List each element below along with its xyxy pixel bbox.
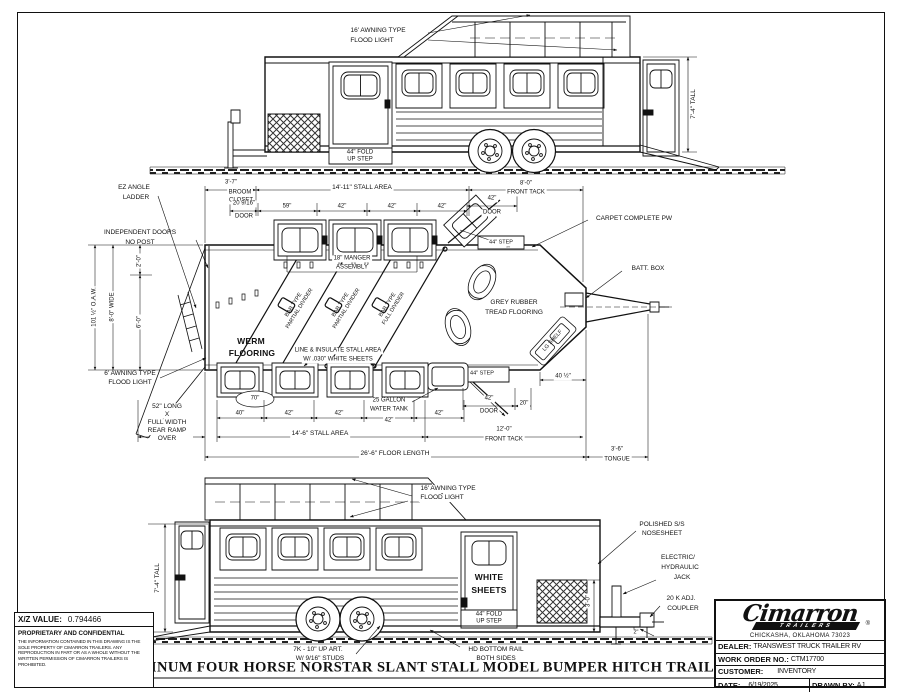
battery-box-label: BATT. BOX	[630, 265, 666, 273]
step-44-bottom-label: 44" STEP	[469, 371, 496, 378]
white-sheets-label: WHITE	[475, 572, 503, 582]
dim-42e: 42"	[333, 410, 345, 417]
nosesheet-label-2: NOSESHEET	[642, 530, 682, 538]
height-dimension-bottom: 7'-4" TALL	[154, 562, 162, 595]
drawn-by-value: AJ	[857, 682, 865, 689]
dim-42a: 42"	[336, 203, 348, 210]
line-insulate-note: LINE & INSULATE STALL AREA	[293, 347, 383, 354]
tongue-dim: 3'-6"	[610, 446, 625, 453]
manger-assembly-label-2: ASSEMBLY	[335, 264, 370, 271]
fold-up-step-label-2: UP STEP	[347, 156, 373, 163]
door-42-bottom-dim: 42"	[483, 395, 495, 402]
door-2016-dim-2: DOOR	[234, 213, 255, 220]
xz-value: 0.794466	[68, 615, 101, 624]
line-insulate-note-2: W/ .030" WHITE SHEETS	[302, 356, 374, 363]
customer-row: CUSTOMER: INVENTORY	[716, 665, 884, 678]
nose-rock-guard	[537, 580, 587, 623]
width-dimension: 8'-0" WIDE	[109, 291, 116, 323]
front-tack-top-dim-2: FRONT TACK	[506, 189, 547, 196]
door-42-top-dim: 42"	[486, 195, 498, 202]
independent-doors-label-2: NO POST	[125, 239, 154, 247]
confidential-title: PROPRIETARY AND CONFIDENTIAL	[15, 627, 153, 638]
bottom-rail-note: HD BOTTOM RAIL	[467, 646, 525, 654]
door-2016-dim: 20 9/16"	[231, 200, 256, 207]
drawing-linework	[0, 0, 900, 695]
dim-42b: 42"	[386, 203, 398, 210]
awning-flood-light-label-2: FLOOD LIGHT	[350, 37, 393, 45]
dim-20: 20"	[518, 400, 530, 407]
tongue-dim-2: TONGUE	[603, 456, 632, 463]
customer-label: CUSTOMER:	[718, 667, 763, 676]
drawing-sheet: 16' AWNING TYPE FLOOD LIGHT 44" FOLD UP …	[0, 0, 900, 695]
oaw-dimension: 101 ½" O.A.W.	[91, 286, 98, 328]
front-tack-top-dim: 8'-0"	[519, 180, 534, 187]
jack-label-3: JACK	[674, 574, 691, 582]
date-value: 6/19/2025	[748, 682, 777, 689]
dim-2in: 2"	[632, 630, 640, 637]
work-order-value: CTM17700	[791, 656, 824, 663]
grey-rubber-label: GREY RUBBER	[489, 299, 539, 307]
fold-up-step-label-bottom-2: UP STEP	[476, 618, 502, 625]
front-tack-bottom-dim: 12'-0"	[495, 426, 513, 433]
front-tack-bottom-dim-2: FRONT TACK	[484, 436, 525, 443]
jack-label: ELECTRIC/	[661, 554, 695, 562]
door-42-top-dim-2: DOOR	[482, 209, 503, 216]
step-44-top-label: 44" STEP	[488, 240, 515, 247]
xz-value-row: X/Z VALUE: 0.794466	[15, 613, 153, 627]
floor-length-dim: 26'-6" FLOOR LENGTH	[359, 450, 431, 458]
dim-42f: 42"	[383, 417, 395, 424]
height-dimension: 7'-4" TALL	[690, 88, 698, 121]
water-tank-label: 25 GALLON	[371, 397, 407, 404]
ground-line-top	[150, 167, 785, 174]
independent-doors-label: INDEPENDENT DOORS	[104, 229, 176, 237]
broom-closet-dim: 3'-7"	[224, 179, 239, 186]
side-door-top-view	[329, 62, 392, 148]
dim-70-label: 70"	[251, 395, 260, 402]
manger-assembly-label: 18" MANGER	[332, 255, 372, 262]
date-label: DATE:	[718, 681, 740, 690]
proprietary-info-box: X/Z VALUE: 0.794466 PROPRIETARY AND CONF…	[14, 612, 154, 688]
work-order-row: WORK ORDER NO.: CTM17700	[716, 653, 884, 666]
dealer-label: DEALER:	[718, 642, 751, 651]
drawn-by-label: DRAWN BY:	[812, 681, 855, 690]
dim-3ft: 3'-0"	[585, 594, 592, 609]
dim-40: 40"	[234, 410, 246, 417]
awning-6-label: 6' AWNING TYPE	[104, 370, 155, 378]
brand-address: CHICKASHA, OKLAHOMA 73023	[716, 633, 884, 640]
dim-59: 59"	[281, 203, 293, 210]
work-order-label: WORK ORDER NO.:	[718, 655, 789, 664]
ramp-note-5: OVER	[156, 435, 177, 443]
dim-2ft: 2'-0"	[136, 254, 143, 269]
water-tank-label-2: WATER TANK	[368, 406, 409, 413]
rear-door-and-ramp-top	[640, 60, 719, 170]
registered-mark: ®	[866, 621, 870, 627]
date-cell: DATE: 6/19/2025	[716, 679, 810, 692]
coupler-label: 20 K ADJ.	[667, 595, 696, 603]
xz-value-label: X/Z VALUE:	[18, 615, 62, 624]
awning-flood-light-label-bottom: 16' AWNING TYPE	[419, 485, 477, 493]
nosesheet-label: POLISHED S/S	[639, 521, 684, 529]
dim-6ft: 6'-0"	[136, 315, 143, 330]
rock-guard-panel	[268, 114, 320, 152]
grey-rubber-label-2: TREAD FLOORING	[484, 309, 545, 317]
axle-note: 7K - 10" UP ART.	[292, 646, 344, 654]
plan-dims-left	[88, 245, 203, 370]
dim-42d: 42"	[283, 410, 295, 417]
title-block: Cimarron TRAILERS ® CHICKASHA, OKLAHOMA …	[714, 599, 886, 688]
coupler-label-2: COUPLER	[667, 605, 698, 613]
date-drawn-row: DATE: 6/19/2025 DRAWN BY: AJ	[716, 678, 884, 692]
ez-angle-ladder-label: EZ ANGLE	[118, 184, 150, 192]
brand-logo-trailers-bar: TRAILERS	[752, 622, 860, 630]
stall-area-bottom-dim: 14'-6" STALL AREA	[290, 430, 350, 438]
awning-6-label-2: FLOOD LIGHT	[108, 379, 151, 387]
ramp-note-4: REAR RAMP	[146, 427, 188, 435]
door-42-bottom-dim-2: DOOR	[479, 408, 500, 415]
battery-box-plan	[565, 293, 583, 306]
ez-angle-ladder-label-2: LADDER	[123, 194, 149, 202]
confidential-body: THE INFORMATION CONTAINED IN THIS DRAWIN…	[15, 638, 153, 669]
werm-flooring-label: WERM	[237, 336, 265, 346]
dim-42c: 42"	[436, 203, 448, 210]
werm-flooring-label-2: FLOORING	[229, 348, 275, 358]
carpet-note: CARPET COMPLETE PW	[594, 215, 673, 223]
dim-42g: 42"	[433, 410, 445, 417]
roof-rack	[398, 16, 630, 57]
dim-40-half: 40 ½"	[554, 373, 572, 380]
customer-value: INVENTORY	[777, 668, 816, 675]
brand-logo: Cimarron TRAILERS ®	[716, 601, 884, 633]
stall-area-top-dim: 14'-11" STALL AREA	[331, 184, 394, 192]
ramp-note: 52" LONG	[151, 403, 184, 411]
awning-flood-light-label-bottom-2: FLOOD LIGHT	[419, 494, 465, 502]
dealer-value: TRANSWEST TRUCK TRAILER RV	[753, 643, 860, 650]
ramp-note-2: X	[163, 411, 170, 419]
white-sheets-label-2: SHEETS	[471, 585, 506, 595]
jack-and-tongue	[224, 110, 267, 168]
broom-closet-label: BROOM	[227, 189, 253, 196]
dealer-row: DEALER: TRANSWEST TRUCK TRAILER RV	[716, 640, 884, 653]
jack-label-2: HYDRAULIC	[661, 564, 699, 572]
ramp-note-3: FULL WIDTH	[146, 419, 188, 427]
awning-flood-light-label: 16' AWNING TYPE	[350, 27, 405, 35]
drawn-by-cell: DRAWN BY: AJ	[810, 679, 867, 692]
sheet-title: ALUMINUM FOUR HORSE NORSTAR SLANT STALL …	[99, 660, 741, 679]
